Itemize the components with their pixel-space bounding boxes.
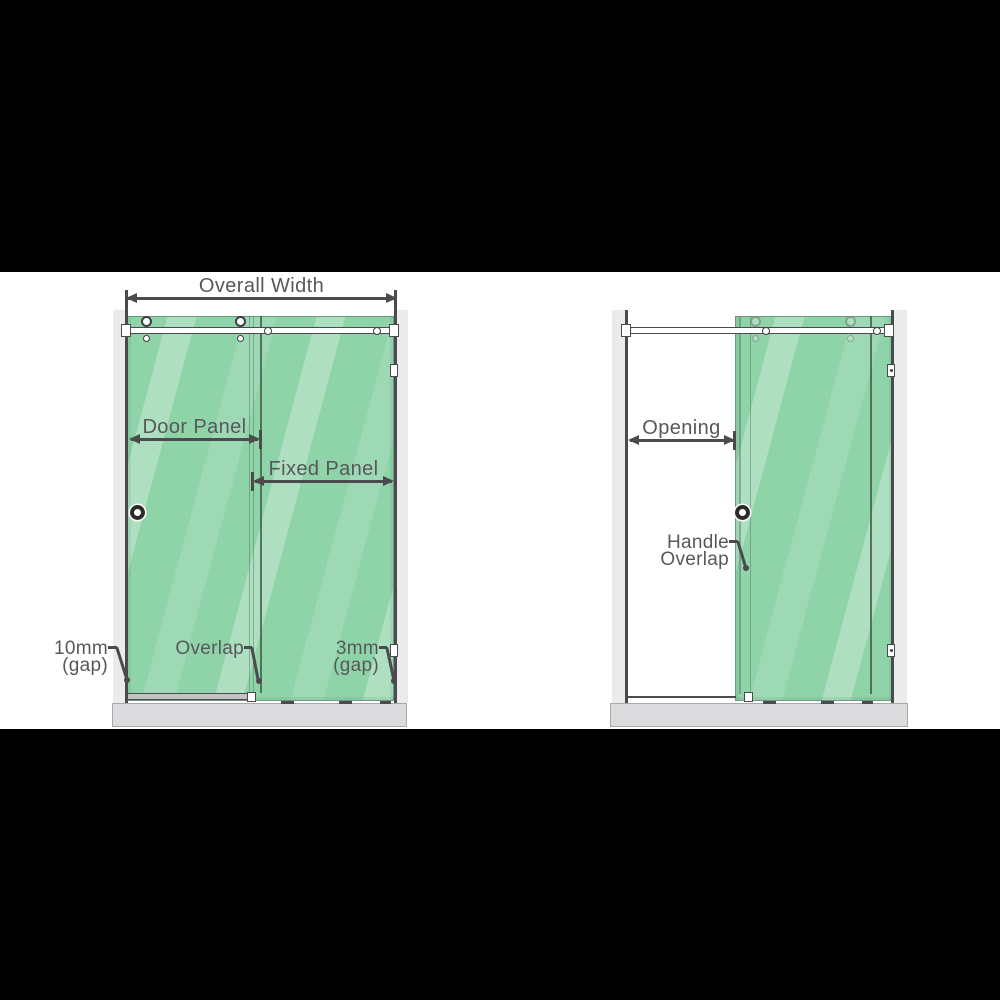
overlap-leader-dot xyxy=(256,678,262,684)
wall-right xyxy=(893,310,907,703)
roller-guide-icon xyxy=(143,335,150,342)
handle-overlap-label: Handle Overlap xyxy=(660,534,729,568)
wall-bracket-top xyxy=(390,364,398,377)
rail-bracket-right xyxy=(884,324,894,337)
bottom-clip xyxy=(380,701,391,704)
opening-arrow xyxy=(628,435,735,446)
door-bottom-guide xyxy=(127,693,249,700)
opening-dim-tick xyxy=(733,431,736,450)
roller-icon xyxy=(141,316,152,327)
panel-clamp-icon xyxy=(762,327,770,335)
fixed-panel-arrow xyxy=(253,476,394,487)
rail-bracket-left xyxy=(121,324,131,337)
wall-bracket-bottom xyxy=(390,644,398,657)
bottom-clip xyxy=(339,701,352,704)
fixed-panel-dim-tick xyxy=(251,472,254,491)
wall-left xyxy=(612,310,626,703)
frame-channel-left xyxy=(625,310,628,703)
door-panel-edge-line xyxy=(870,316,872,694)
panel-clamp-icon xyxy=(373,327,381,335)
left-gap-leader-dot xyxy=(124,677,130,683)
frame-channel-right xyxy=(394,290,397,703)
wall-bracket-bottom xyxy=(887,644,895,657)
handle-knob xyxy=(130,505,145,520)
overlap-label: Overlap xyxy=(172,640,244,657)
roller-icon xyxy=(235,316,246,327)
shower-base xyxy=(112,703,407,727)
right-gap-leader-dot xyxy=(391,678,397,684)
fixed-panel-edge-line xyxy=(750,316,752,701)
right-gap-label: 3mm (gap) xyxy=(324,640,379,674)
wall-bracket-top xyxy=(887,364,895,377)
handle-overlap-leader-dot xyxy=(743,565,749,571)
left-gap-label: 10mm (gap) xyxy=(53,640,108,674)
bottom-clip xyxy=(281,701,294,704)
panel-clamp-icon xyxy=(873,327,881,335)
roller-icon xyxy=(750,316,761,327)
frame-channel-left xyxy=(125,290,128,703)
shower-screen-dimension-diagram: Overall Width Door Panel Fixed Panel 10m… xyxy=(0,0,1000,1000)
open-position-diagram: Opening Handle Overlap xyxy=(500,0,1000,1000)
roller-guide-icon xyxy=(752,335,759,342)
bottom-guide-block xyxy=(744,692,753,702)
shower-base xyxy=(610,703,908,727)
roller-icon xyxy=(845,316,856,327)
rail-bracket-left xyxy=(621,324,631,337)
right-gap-label-line2: (gap) xyxy=(324,657,379,674)
door-panel-arrow xyxy=(129,434,260,445)
top-rail xyxy=(622,327,893,334)
bottom-track-line xyxy=(628,696,736,698)
bottom-clip xyxy=(763,701,776,704)
handle-knob xyxy=(735,505,750,520)
door-panel-dim-tick xyxy=(259,430,262,449)
top-rail xyxy=(122,327,398,334)
fixed-panel-edge-line-2 xyxy=(253,316,255,701)
roller-guide-icon xyxy=(847,335,854,342)
bottom-guide-block xyxy=(247,692,256,702)
fixed-panel-edge-line xyxy=(249,316,251,701)
door-panel-edge-line xyxy=(260,316,262,693)
overall-width-arrow xyxy=(126,293,397,304)
left-gap-label-line2: (gap) xyxy=(53,657,108,674)
roller-guide-icon xyxy=(237,335,244,342)
closed-position-diagram: Overall Width Door Panel Fixed Panel 10m… xyxy=(0,0,500,1000)
bottom-clip xyxy=(821,701,834,704)
handle-overlap-label-line2: Overlap xyxy=(660,551,729,568)
rail-bracket-right xyxy=(389,324,399,337)
panel-clamp-icon xyxy=(264,327,272,335)
bottom-clip xyxy=(862,701,873,704)
